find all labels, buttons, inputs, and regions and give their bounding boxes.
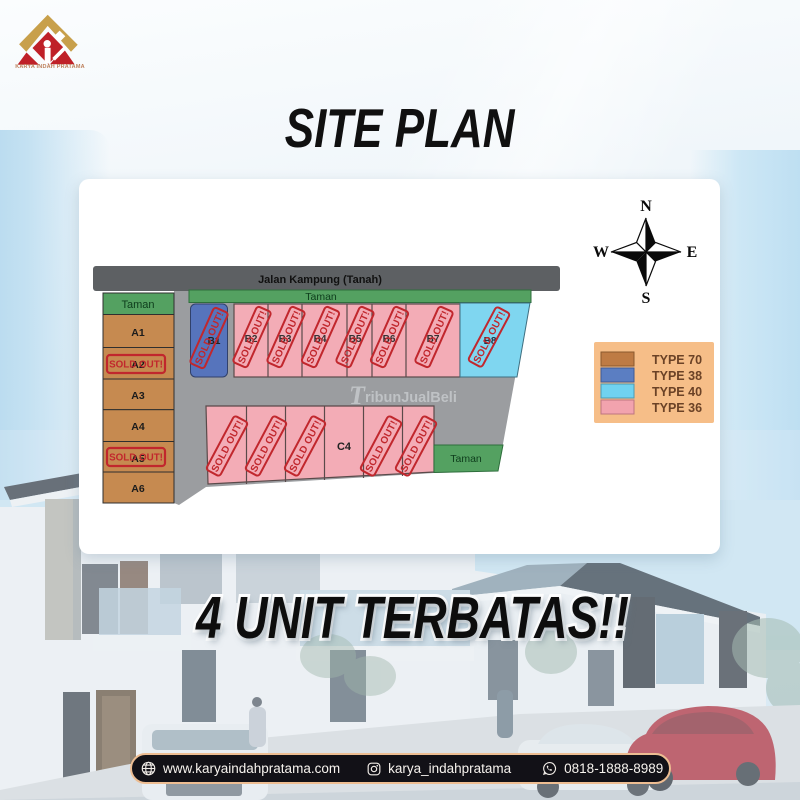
svg-text:TYPE 38: TYPE 38 [652, 369, 702, 383]
svg-text:A4: A4 [131, 421, 145, 433]
svg-text:S: S [642, 290, 651, 307]
svg-text:Jalan Kampung (Tanah): Jalan Kampung (Tanah) [258, 274, 382, 286]
svg-text:TYPE 40: TYPE 40 [652, 385, 702, 399]
svg-text:ribunJualBeli: ribunJualBeli [365, 390, 457, 406]
svg-text:N: N [640, 198, 652, 215]
svg-text:TYPE 70: TYPE 70 [652, 353, 702, 367]
svg-text:Taman: Taman [305, 291, 337, 303]
svg-text:E: E [687, 244, 698, 261]
svg-text:Taman: Taman [450, 453, 482, 465]
svg-text:T: T [349, 381, 366, 410]
svg-text:W: W [593, 244, 609, 261]
svg-text:A3: A3 [131, 390, 145, 402]
svg-text:A6: A6 [131, 483, 145, 495]
svg-text:Taman: Taman [121, 299, 154, 311]
svg-text:A1: A1 [131, 327, 145, 339]
svg-text:C4: C4 [337, 441, 352, 453]
svg-text:TYPE 36: TYPE 36 [652, 401, 702, 415]
